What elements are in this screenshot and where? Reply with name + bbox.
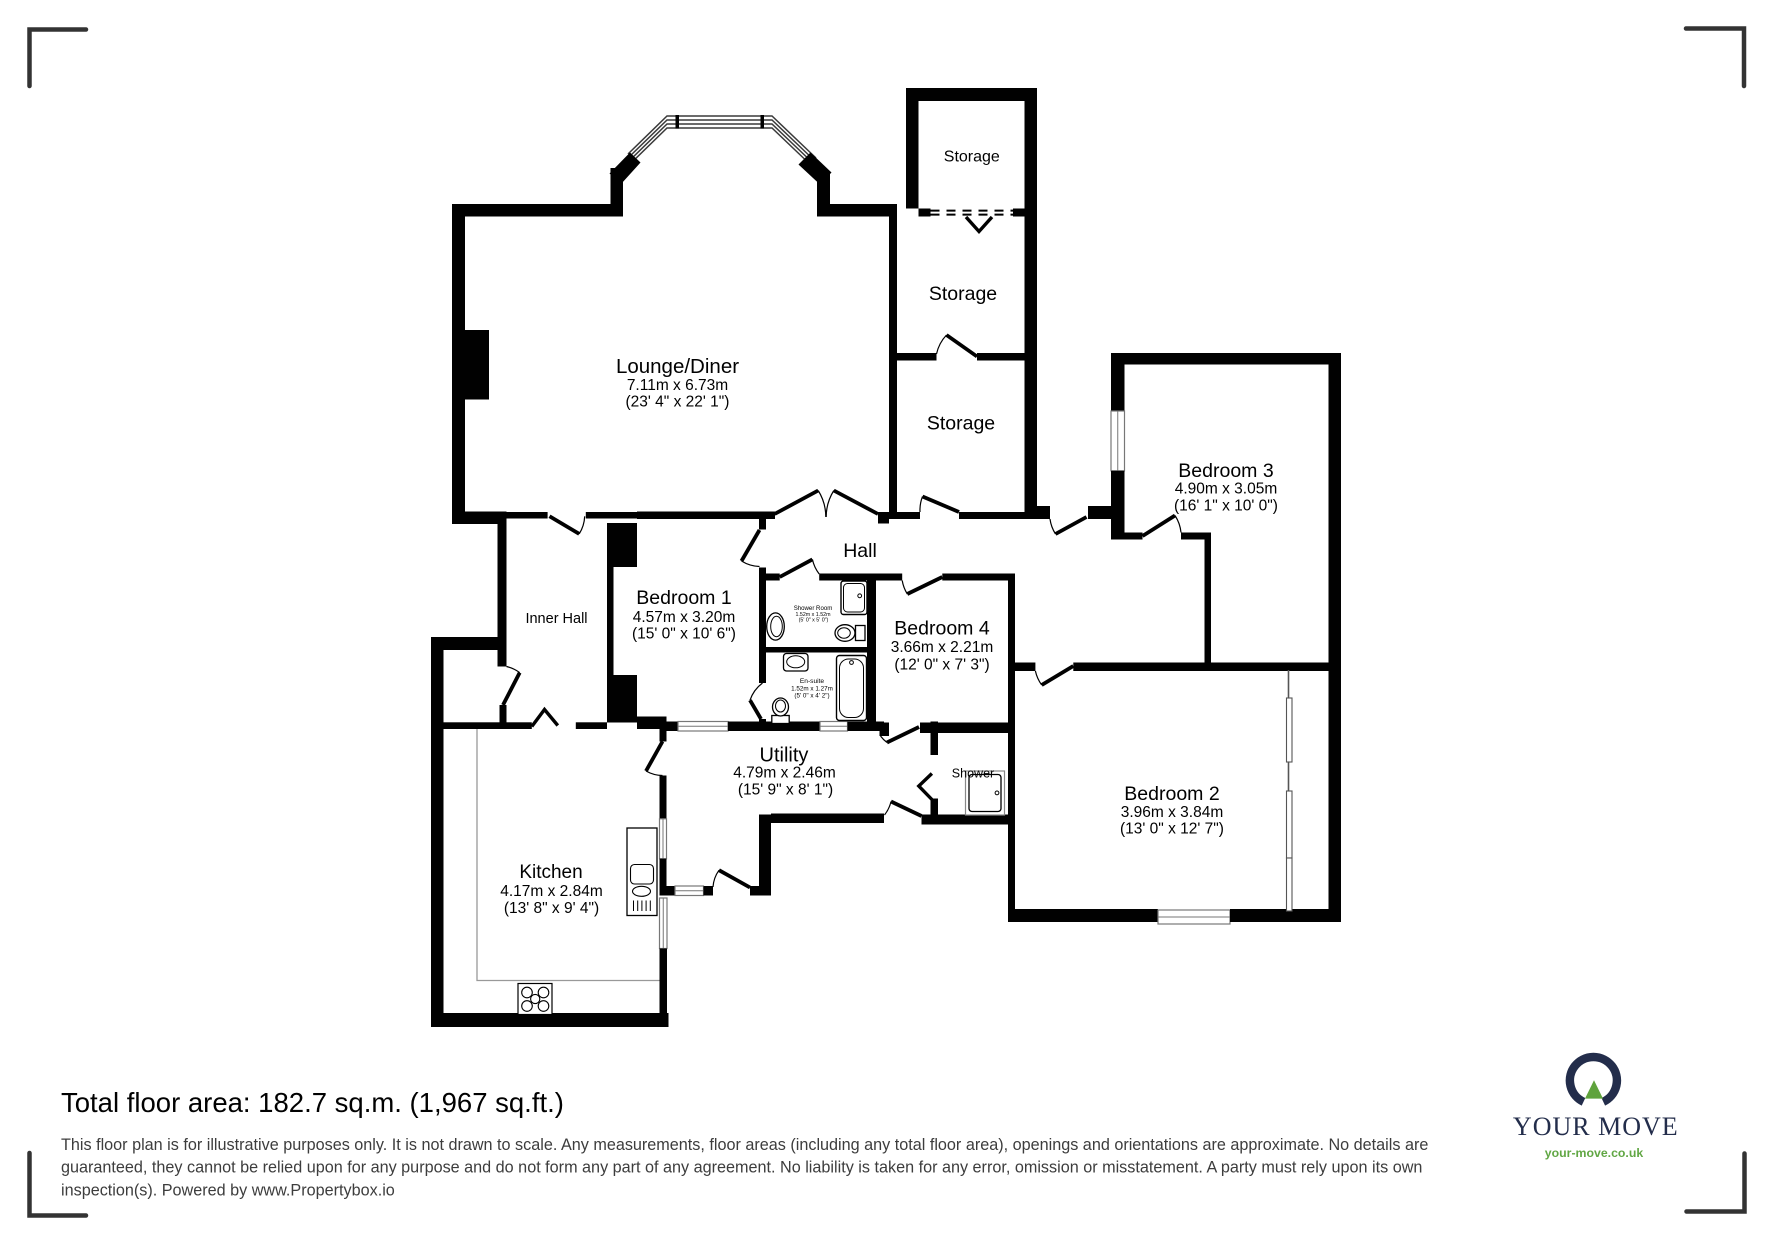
svg-text:Bedroom 4: Bedroom 4 [894,618,990,640]
svg-text:Storage: Storage [927,413,995,435]
svg-text:7.11m x 6.73m: 7.11m x 6.73m [627,377,728,394]
svg-text:(23' 4" x 22' 1"): (23' 4" x 22' 1") [626,394,730,411]
svg-text:Storage: Storage [944,149,1000,166]
svg-text:4.90m x 3.05m: 4.90m x 3.05m [1175,481,1278,498]
svg-text:Inner Hall: Inner Hall [525,611,587,627]
svg-text:3.96m x 3.84m: 3.96m x 3.84m [1121,804,1224,821]
svg-text:4.79m x 2.46m: 4.79m x 2.46m [733,764,836,781]
svg-text:(15' 9" x 8' 1"): (15' 9" x 8' 1") [738,781,833,798]
svg-text:4.17m x 2.84m: 4.17m x 2.84m [500,883,603,900]
svg-text:Shower Room: Shower Room [794,605,833,612]
svg-text:your-move.co.uk: your-move.co.uk [1545,1146,1644,1160]
svg-text:Shower: Shower [952,767,994,781]
svg-text:inspection(s). Powered by www.: inspection(s). Powered by www.Propertybo… [61,1181,395,1199]
svg-text:This floor plan is for illustr: This floor plan is for illustrative purp… [61,1136,1428,1154]
svg-text:(5' 0" x 5' 0"): (5' 0" x 5' 0") [799,618,829,624]
svg-text:(13' 8" x 9' 4"): (13' 8" x 9' 4") [504,900,599,917]
svg-text:Storage: Storage [929,283,997,305]
svg-text:Hall: Hall [843,540,877,562]
svg-text:1.52m x 1.27m: 1.52m x 1.27m [791,685,833,692]
svg-text:(13' 0" x 12' 7"): (13' 0" x 12' 7") [1120,821,1224,838]
svg-text:Lounge/Diner: Lounge/Diner [616,355,739,378]
svg-text:(5' 0" x 4' 2"): (5' 0" x 4' 2") [794,693,829,700]
svg-text:(16' 1" x 10' 0"): (16' 1" x 10' 0") [1174,498,1278,515]
svg-text:Kitchen: Kitchen [519,862,582,883]
svg-text:(15' 0" x 10' 6"): (15' 0" x 10' 6") [632,626,736,643]
svg-text:En-suite: En-suite [800,678,825,685]
svg-text:Bedroom 2: Bedroom 2 [1124,783,1219,805]
svg-text:Utility: Utility [760,745,809,767]
svg-text:4.57m x 3.20m: 4.57m x 3.20m [633,609,736,626]
svg-text:Bedroom 1: Bedroom 1 [636,587,731,609]
svg-text:Bedroom 3: Bedroom 3 [1178,460,1273,482]
svg-text:YOUR MOVE: YOUR MOVE [1513,1112,1679,1141]
svg-text:guaranteed, they cannot be rel: guaranteed, they cannot be relied upon f… [61,1159,1422,1177]
svg-text:(12' 0" x 7' 3"): (12' 0" x 7' 3") [894,657,989,674]
svg-text:Total floor area: 182.7 sq.m.: Total floor area: 182.7 sq.m. (1,967 sq.… [61,1087,564,1118]
svg-text:3.66m x 2.21m: 3.66m x 2.21m [891,639,994,656]
